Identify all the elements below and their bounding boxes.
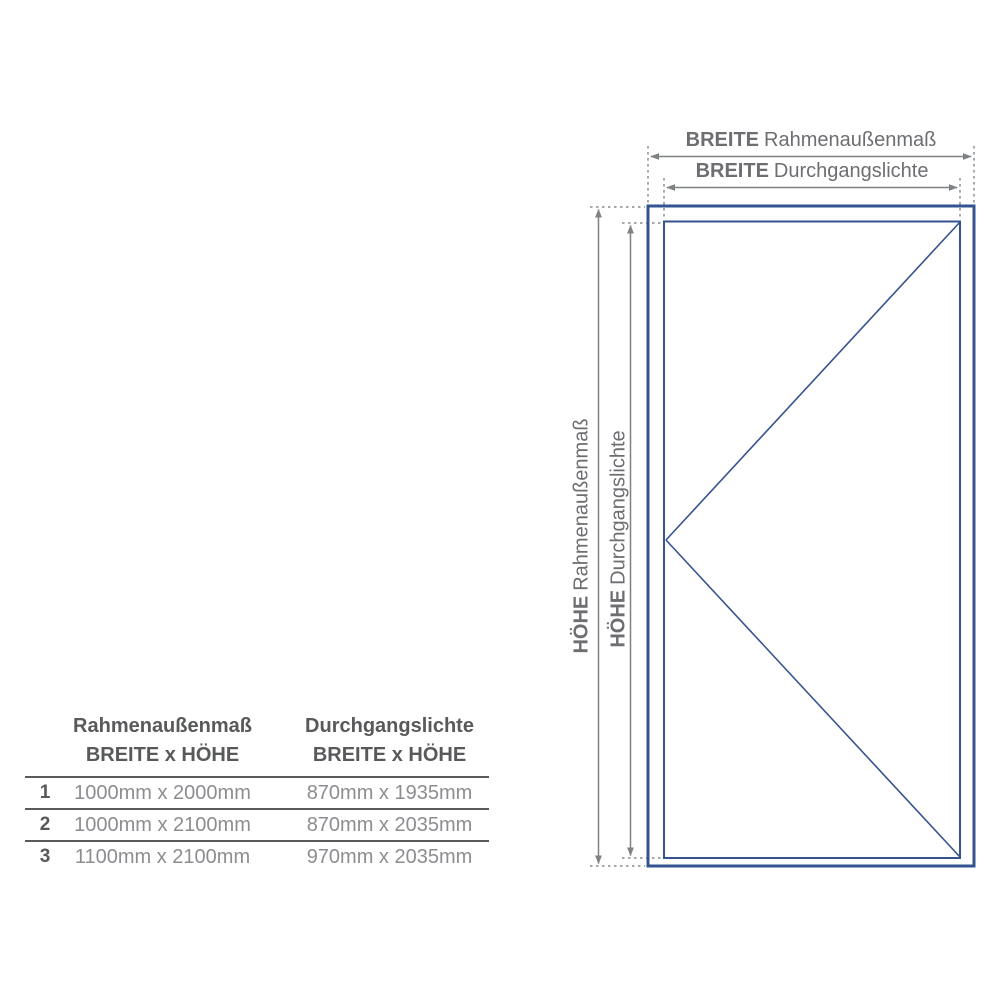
- header-rahmenaussenmass: Rahmenaußenmaß BREITE x HÖHE: [65, 712, 260, 770]
- hoehe-rahmenaussenmass-label: HÖHERahmenaußenmaß: [571, 418, 594, 653]
- breite-durchgangslichte-label-text: Durchgangslichte: [774, 160, 929, 182]
- hoehe-durchgangslichte-label: HÖHEDurchgangslichte: [608, 430, 631, 647]
- dimensions-table: Rahmenaußenmaß BREITE x HÖHE Durchgangsl…: [25, 712, 489, 872]
- door-dimension-drawing: BREITERahmenaußenmaß BREITEDurchgangslic…: [0, 0, 1000, 1000]
- row-number: 3: [25, 846, 65, 868]
- opening-direction-line-bottom: [666, 540, 960, 857]
- breite-rahmenaussenmass-label: BREITERahmenaußenmaß: [648, 129, 974, 151]
- row-durchgangslichte-value: 870mm x 2035mm: [290, 814, 489, 837]
- row-rahmenaussenmass-value: 1100mm x 2100mm: [65, 846, 260, 869]
- breite-rahmenaussenmass-label-bold: BREITE: [686, 129, 759, 151]
- dimension-lines: [599, 157, 972, 864]
- hoehe-rahmenaussenmass-label-text: Rahmenaußenmaß: [571, 418, 593, 590]
- table-row: 2 1000mm x 2100mm 870mm x 2035mm: [25, 810, 489, 842]
- header-rahmenaussenmass-line1: Rahmenaußenmaß: [65, 712, 260, 741]
- row-rahmenaussenmass-value: 1000mm x 2100mm: [65, 814, 260, 837]
- row-rahmenaussenmass-value: 1000mm x 2000mm: [65, 782, 260, 805]
- hoehe-rahmenaussenmass-label-bold: HÖHE: [571, 596, 593, 654]
- row-durchgangslichte-value: 970mm x 2035mm: [290, 846, 489, 869]
- row-durchgangslichte-value: 870mm x 1935mm: [290, 782, 489, 805]
- breite-durchgangslichte-label: BREITEDurchgangslichte: [664, 160, 960, 182]
- door-leaf-inner-rect: [664, 222, 960, 859]
- row-number: 1: [25, 782, 65, 804]
- table-row: 1 1000mm x 2000mm 870mm x 1935mm: [25, 778, 489, 810]
- breite-rahmenaussenmass-label-text: Rahmenaußenmaß: [764, 129, 936, 151]
- header-durchgangslichte-line1: Durchgangslichte: [290, 712, 489, 741]
- hoehe-durchgangslichte-label-text: Durchgangslichte: [608, 430, 630, 585]
- breite-durchgangslichte-label-bold: BREITE: [696, 160, 769, 182]
- row-number: 2: [25, 814, 65, 836]
- table-row: 3 1100mm x 2100mm 970mm x 2035mm: [25, 842, 489, 872]
- hoehe-durchgangslichte-label-bold: HÖHE: [608, 590, 630, 648]
- header-durchgangslichte: Durchgangslichte BREITE x HÖHE: [290, 712, 489, 770]
- header-durchgangslichte-line2: BREITE x HÖHE: [290, 741, 489, 770]
- dimensions-table-header: Rahmenaußenmaß BREITE x HÖHE Durchgangsl…: [25, 712, 489, 778]
- door-frame-outer-rect: [648, 206, 974, 866]
- door: [648, 206, 974, 866]
- opening-direction-line-top: [666, 222, 960, 540]
- header-rahmenaussenmass-line2: BREITE x HÖHE: [65, 741, 260, 770]
